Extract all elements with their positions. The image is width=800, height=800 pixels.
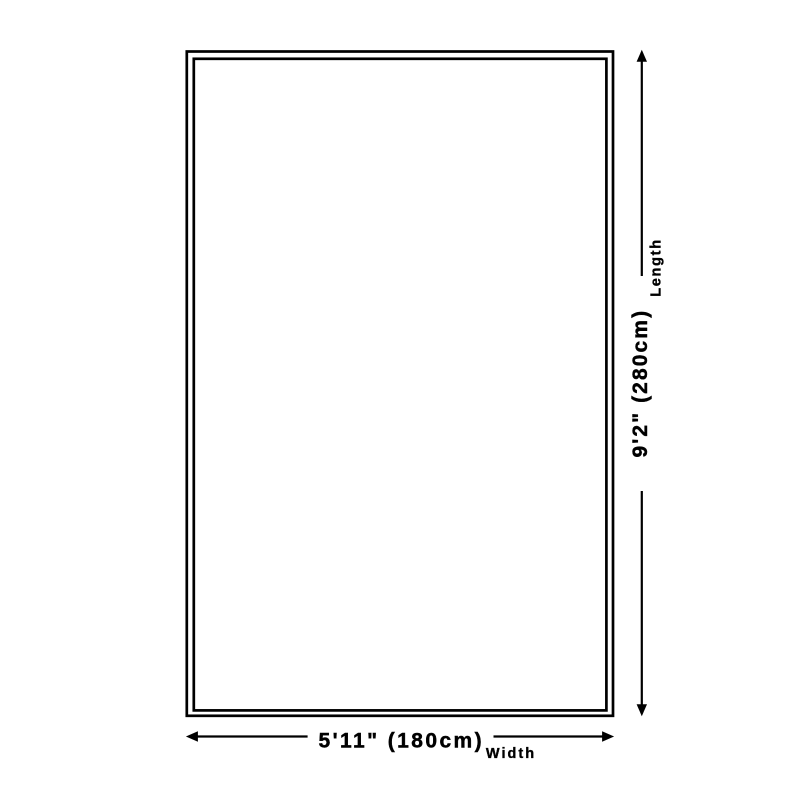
svg-text:5'11" (180cm): 5'11" (180cm) xyxy=(319,730,485,753)
svg-text:Width: Width xyxy=(486,746,536,762)
svg-text:Length: Length xyxy=(649,238,665,297)
svg-text:9'2" (280cm): 9'2" (280cm) xyxy=(629,309,652,458)
